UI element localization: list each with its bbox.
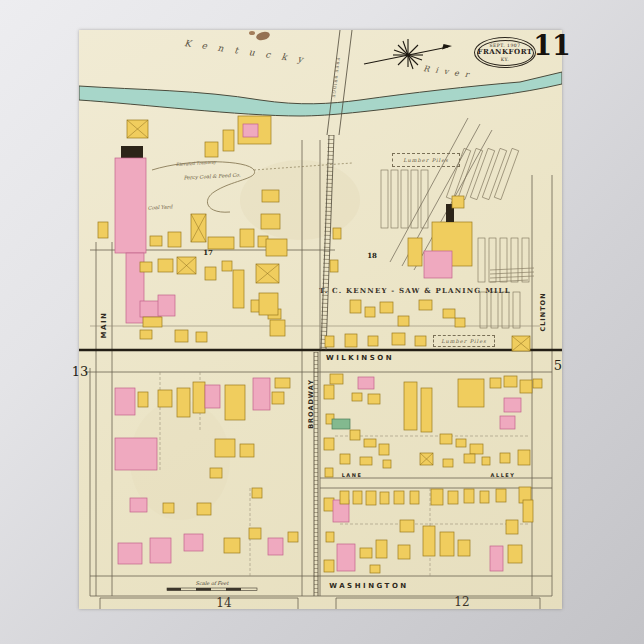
building-footprint — [324, 560, 334, 572]
building-footprint — [504, 398, 521, 412]
building-footprint — [261, 214, 280, 229]
building-footprint — [350, 430, 360, 440]
building-footprint — [431, 489, 443, 505]
building-footprint — [456, 439, 466, 447]
lumber-pile — [513, 292, 520, 328]
building-footprint — [340, 491, 349, 504]
building-footprint — [443, 459, 453, 467]
building-footprint — [115, 388, 135, 415]
building-footprint — [243, 124, 258, 137]
building-footprint — [325, 468, 333, 477]
building-footprint — [345, 334, 357, 347]
building-footprint — [490, 378, 501, 388]
lumber-pile — [502, 292, 509, 328]
building-footprint — [404, 382, 417, 430]
building-footprint — [415, 336, 426, 346]
building-footprint — [480, 491, 489, 503]
building-footprint — [368, 336, 378, 346]
building-footprint — [177, 388, 190, 417]
building-footprint — [408, 238, 422, 266]
building-footprint — [288, 532, 298, 542]
lumber-pile — [511, 238, 518, 282]
building-footprint — [419, 300, 432, 310]
building-footprint — [215, 439, 235, 457]
building-footprint — [222, 261, 232, 271]
building-footprint — [333, 228, 341, 239]
building-footprint — [458, 379, 484, 407]
building-footprint — [470, 444, 483, 454]
building-footprint — [380, 492, 389, 504]
building-footprint — [440, 532, 454, 556]
lumber-pile — [411, 170, 418, 228]
lumber-pile — [522, 238, 529, 282]
building-footprint — [464, 454, 475, 463]
building-footprint — [233, 270, 244, 308]
annotation-lines — [490, 268, 534, 282]
building-footprint — [324, 385, 334, 399]
building-footprint — [130, 498, 147, 512]
building-footprint — [380, 302, 393, 313]
building-footprint — [443, 309, 455, 318]
building-footprint — [337, 544, 355, 571]
building-footprint — [193, 382, 205, 413]
building-footprint — [455, 318, 465, 327]
building-footprint — [184, 534, 203, 551]
building-footprint — [240, 444, 254, 457]
building-footprint — [205, 142, 218, 157]
building-footprint — [490, 546, 503, 571]
stamp-state: KY. — [501, 57, 510, 62]
building-footprint — [340, 454, 350, 464]
river-layer — [79, 72, 562, 116]
building-footprint — [268, 538, 283, 555]
building-footprint — [398, 545, 410, 559]
lumber-pile — [500, 238, 507, 282]
building-footprint — [500, 453, 510, 463]
building-footprint — [150, 236, 162, 246]
building-footprint — [500, 416, 515, 429]
building-footprint — [360, 548, 372, 558]
building-footprint — [392, 333, 405, 345]
building-footprint — [158, 390, 172, 407]
lumber-pile — [401, 170, 408, 228]
building-footprint — [225, 385, 245, 420]
stamp-city: FRANKFORT — [477, 48, 532, 56]
building-footprint — [398, 316, 409, 326]
building-footprint — [259, 293, 278, 315]
building-footprint — [326, 532, 334, 542]
building-footprint — [452, 196, 464, 208]
building-footprint — [350, 300, 361, 313]
lumber-pile — [478, 238, 485, 282]
building-footprint — [224, 538, 240, 553]
building-footprint — [324, 438, 334, 450]
date-stamp: SEPT. 1907 FRANKFORT KY. — [474, 37, 536, 68]
building-footprint — [365, 307, 375, 317]
building-footprint — [205, 385, 220, 408]
building-footprint — [364, 439, 376, 447]
building-footprint — [163, 503, 174, 513]
building-footprint — [400, 520, 414, 532]
building-footprint — [353, 491, 362, 504]
building-footprint — [506, 520, 518, 534]
building-footprint — [368, 394, 380, 404]
building-footprint — [421, 388, 432, 432]
building-footprint — [158, 259, 173, 272]
building-footprint — [366, 491, 376, 505]
building-footprint — [249, 528, 261, 539]
building-footprint — [448, 491, 458, 504]
building-footprint — [379, 444, 389, 455]
lumber-pile — [489, 238, 496, 282]
building-footprint — [140, 262, 152, 272]
building-footprint — [358, 377, 374, 389]
poster: Kentucky River T. C. KENNEY - SAW & PLAN… — [0, 0, 644, 644]
building-footprint — [223, 130, 234, 151]
building-footprint — [440, 434, 452, 444]
building-footprint — [197, 503, 211, 515]
building-footprint — [115, 158, 146, 253]
building-footprint — [158, 295, 175, 316]
building-footprint — [332, 419, 350, 429]
building-footprint — [118, 543, 142, 564]
building-footprint — [330, 374, 343, 384]
building-footprint — [520, 380, 532, 393]
building-footprint — [140, 330, 152, 339]
building-footprint — [330, 260, 338, 272]
building-footprint — [458, 540, 470, 556]
building-footprint — [504, 376, 517, 387]
building-footprint — [150, 538, 171, 563]
building-footprint — [253, 378, 270, 410]
building-footprint — [266, 239, 287, 256]
building-footprint — [383, 460, 391, 468]
building-footprint — [208, 237, 234, 249]
lumber-pile — [480, 292, 487, 328]
building-footprint — [275, 378, 290, 388]
building-footprint — [262, 190, 279, 202]
building-footprint — [138, 392, 148, 407]
building-footprint — [196, 332, 207, 342]
building-footprint — [270, 320, 285, 336]
scale-bar — [167, 588, 257, 591]
lumber-pile — [391, 170, 398, 228]
map-graphics — [79, 30, 562, 609]
building-footprint — [352, 393, 362, 401]
building-footprint — [523, 500, 533, 522]
building-footprint — [360, 457, 372, 465]
building-footprint — [464, 489, 474, 503]
building-footprint — [252, 488, 262, 498]
building-footprint — [205, 267, 216, 280]
building-footprint — [370, 565, 380, 573]
building-footprint — [325, 336, 334, 347]
building-footprint — [175, 330, 188, 342]
building-footprint — [210, 468, 222, 478]
building-footprint — [121, 146, 143, 158]
building-footprint — [518, 450, 530, 465]
building-footprint — [482, 457, 490, 465]
building-footprint — [324, 498, 334, 511]
building-footprint — [394, 491, 404, 504]
building-footprint — [496, 489, 506, 502]
lumber-pile — [381, 170, 388, 228]
compass-icon — [364, 39, 452, 69]
building-footprint — [533, 379, 542, 388]
building-footprint — [115, 438, 157, 470]
building-footprint — [168, 232, 181, 247]
building-footprint — [376, 540, 387, 558]
lumber-pile — [491, 292, 498, 328]
building-footprint — [423, 526, 435, 556]
building-footprint — [98, 222, 108, 238]
building-footprint — [240, 229, 254, 247]
building-footprint — [272, 392, 284, 404]
building-footprint — [508, 545, 522, 563]
building-footprint — [143, 317, 162, 327]
building-footprint — [410, 491, 419, 504]
building-footprint — [424, 251, 452, 278]
